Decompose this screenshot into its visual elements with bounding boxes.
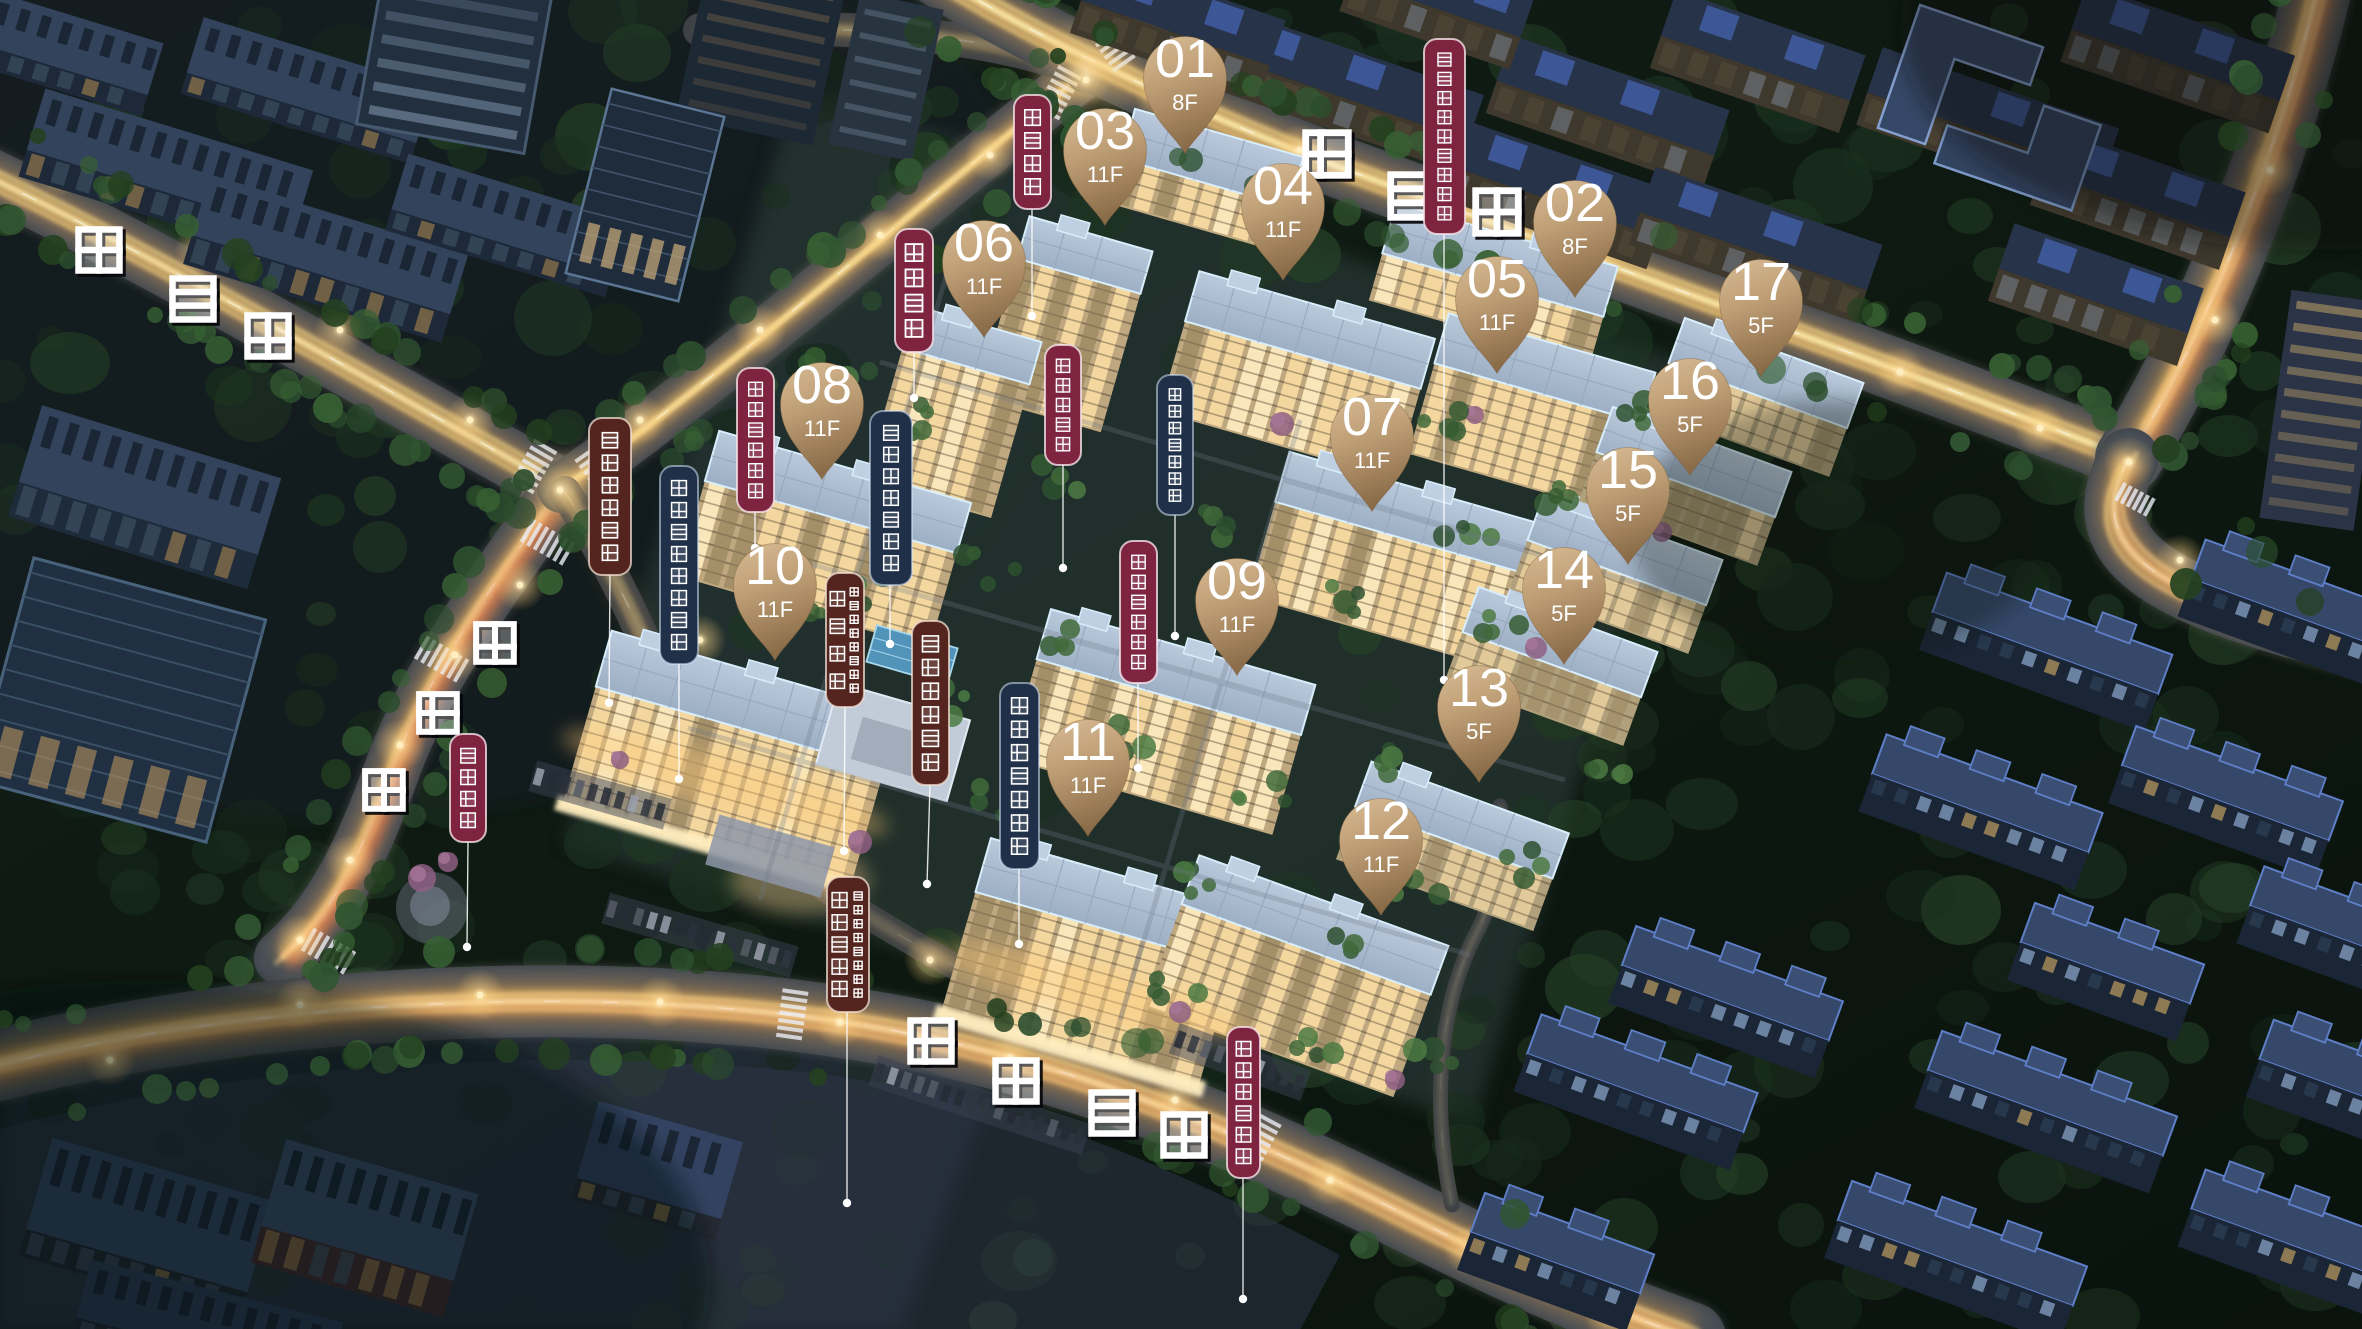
svg-text:15: 15 bbox=[1598, 440, 1658, 500]
svg-text:5F: 5F bbox=[1615, 501, 1641, 526]
svg-text:11F: 11F bbox=[1219, 612, 1255, 637]
svg-text:17: 17 bbox=[1731, 252, 1791, 312]
svg-text:11F: 11F bbox=[1265, 217, 1301, 242]
svg-text:07: 07 bbox=[1342, 387, 1402, 447]
svg-text:14: 14 bbox=[1534, 540, 1594, 600]
svg-text:09: 09 bbox=[1207, 551, 1267, 611]
svg-text:16: 16 bbox=[1660, 351, 1720, 411]
svg-text:11F: 11F bbox=[804, 416, 840, 441]
svg-text:08: 08 bbox=[792, 355, 852, 415]
svg-text:11F: 11F bbox=[1087, 162, 1123, 187]
svg-text:04: 04 bbox=[1253, 156, 1313, 216]
svg-text:8F: 8F bbox=[1562, 234, 1588, 259]
svg-text:06: 06 bbox=[954, 213, 1014, 273]
svg-text:11F: 11F bbox=[1354, 448, 1390, 473]
svg-text:11F: 11F bbox=[757, 597, 793, 622]
svg-text:11: 11 bbox=[1060, 712, 1116, 772]
svg-text:03: 03 bbox=[1075, 101, 1135, 161]
svg-text:11F: 11F bbox=[1070, 773, 1106, 798]
svg-text:5F: 5F bbox=[1748, 313, 1774, 338]
svg-text:11F: 11F bbox=[1363, 852, 1399, 877]
svg-text:8F: 8F bbox=[1172, 90, 1198, 115]
svg-text:10: 10 bbox=[745, 536, 805, 596]
svg-text:5F: 5F bbox=[1466, 719, 1492, 744]
svg-text:11F: 11F bbox=[1479, 310, 1515, 335]
svg-text:01: 01 bbox=[1155, 29, 1215, 89]
svg-text:05: 05 bbox=[1467, 249, 1527, 309]
svg-text:11F: 11F bbox=[966, 274, 1002, 299]
svg-text:5F: 5F bbox=[1551, 601, 1577, 626]
svg-text:5F: 5F bbox=[1677, 412, 1703, 437]
svg-text:12: 12 bbox=[1351, 791, 1411, 851]
svg-text:13: 13 bbox=[1449, 658, 1509, 718]
svg-text:02: 02 bbox=[1545, 173, 1605, 233]
